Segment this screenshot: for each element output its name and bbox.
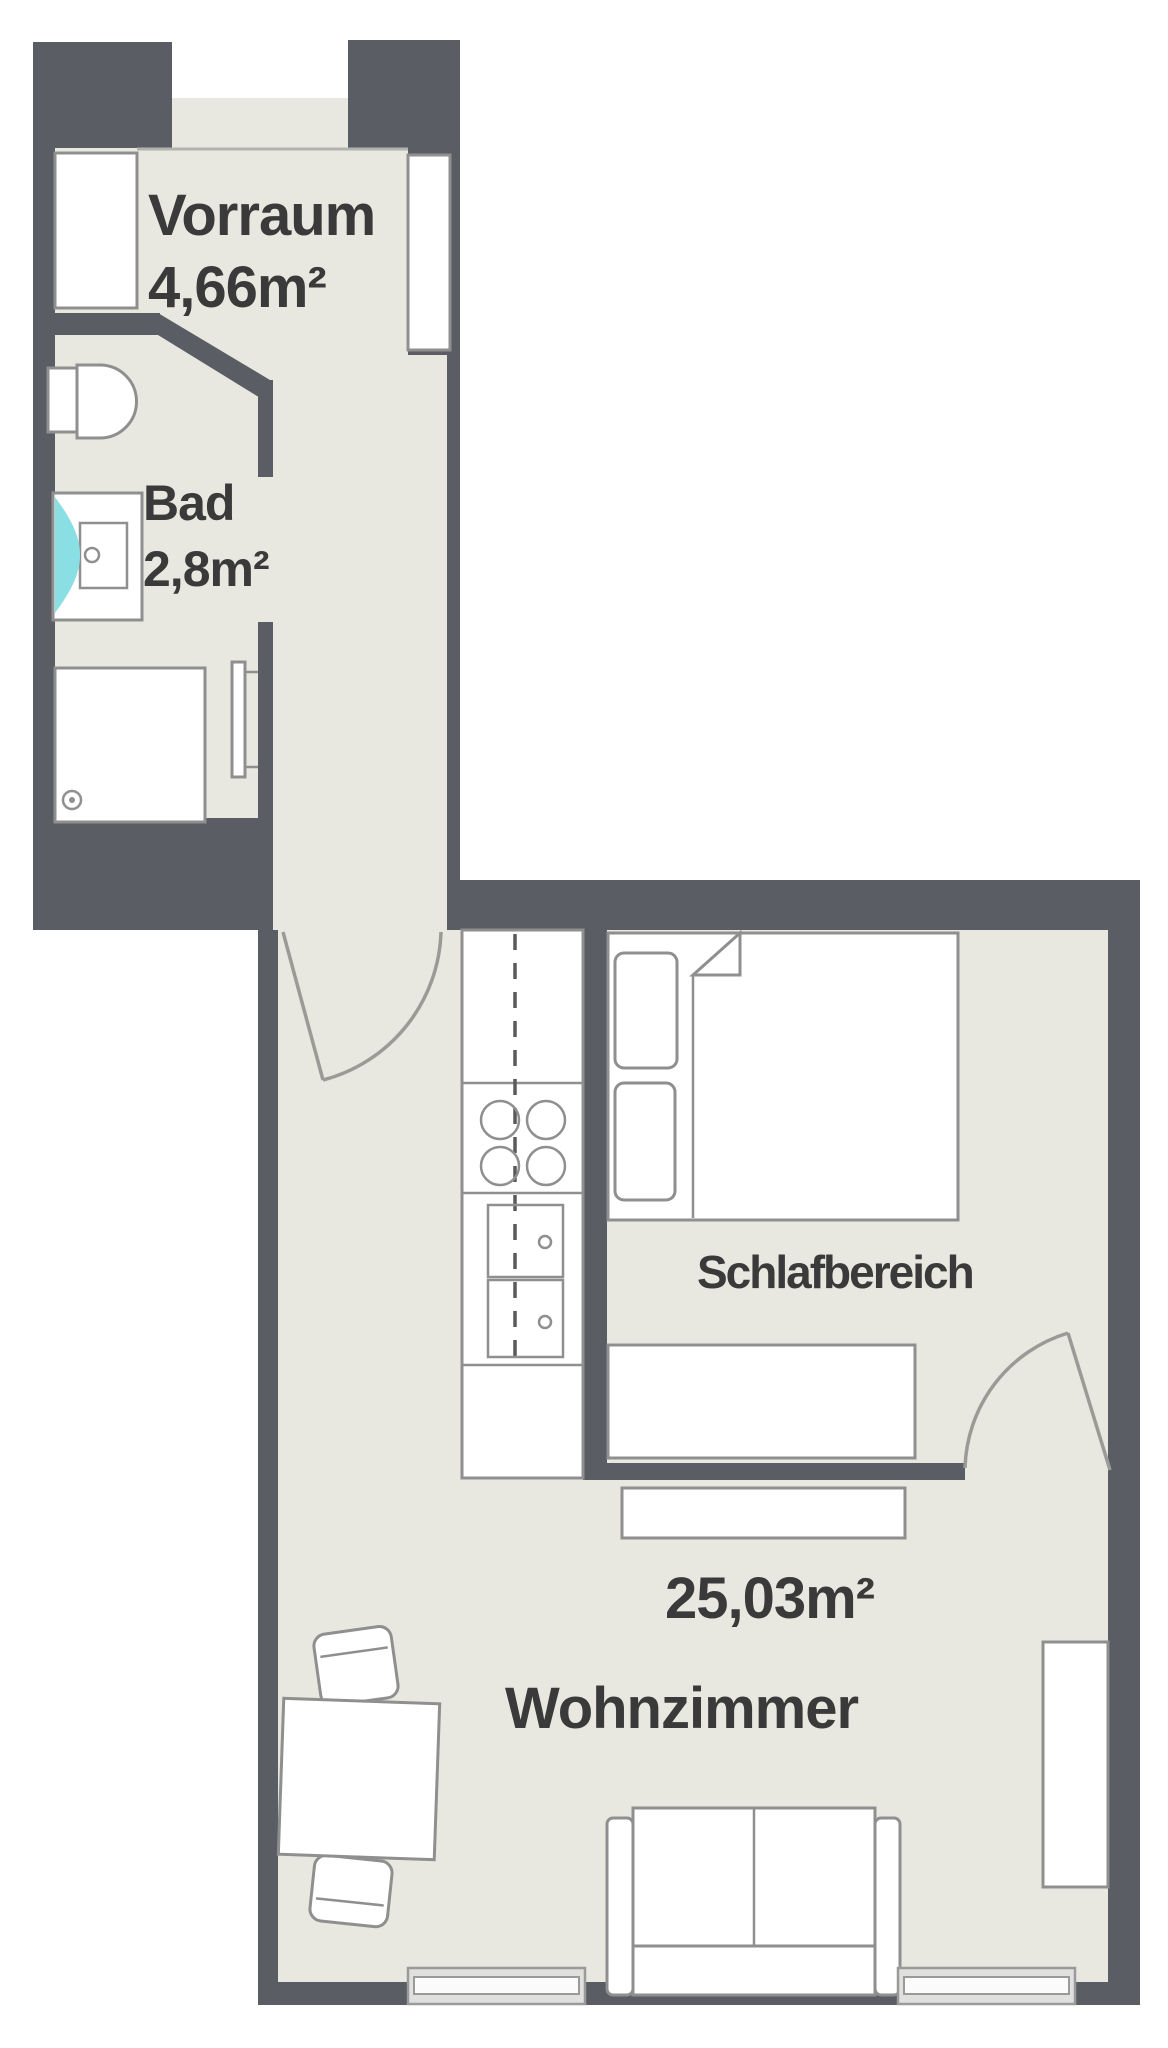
toilet-tank (48, 368, 77, 432)
wall-shelf (1043, 1642, 1108, 1887)
wall-bad-right-lower (258, 622, 273, 818)
sleeping-area-furniture (608, 933, 958, 1458)
sofa-armrest-left (607, 1818, 633, 1995)
wall-living-top (447, 880, 1140, 930)
shower-drain-dot (69, 797, 75, 803)
bad-label: Bad (143, 475, 234, 531)
chair-top (312, 1625, 399, 1707)
entry-door-niche (408, 155, 450, 350)
floor-plan: Vorraum 4,66m² Bad 2,8m² Schlafbereich 2… (0, 0, 1168, 2048)
towel-radiator (232, 662, 245, 777)
foot-bench (608, 1345, 915, 1458)
wall-divider-vertical (583, 930, 607, 1480)
floor-plan-drawing: Vorraum 4,66m² Bad 2,8m² Schlafbereich 2… (0, 0, 1168, 2048)
wall-right-corridor (447, 350, 460, 880)
chair-bottom (309, 1854, 393, 1928)
window-left (408, 1968, 585, 2004)
sideboard (622, 1488, 905, 1538)
wall-bad-right-upper (258, 380, 273, 477)
wall-bad-bottom-block (33, 818, 273, 930)
wohnzimmer-area: 25,03m² (665, 1566, 875, 1631)
bad-area: 2,8m² (143, 541, 269, 597)
toilet-bowl (77, 365, 137, 438)
wall-top-left-stub (33, 42, 172, 148)
sofa-armrest-right (875, 1818, 900, 1995)
entrance-outside-notch (172, 42, 348, 98)
built-in-closet (55, 153, 137, 308)
schlafbereich-label: Schlafbereich (697, 1246, 973, 1298)
pillow (615, 1083, 675, 1200)
wohnzimmer-label: Wohnzimmer (505, 1676, 858, 1741)
vorraum-area: 4,66m² (148, 255, 326, 320)
wall-vorraum-bad (33, 313, 160, 335)
window-right (898, 1968, 1075, 2004)
wall-living-right (1108, 930, 1140, 2005)
wall-divider-horizontal (583, 1463, 965, 1480)
wall-living-left (258, 930, 278, 2005)
vorraum-label: Vorraum (148, 183, 375, 248)
pillow (615, 953, 677, 1068)
wall-left-outer (33, 42, 55, 930)
wall-top-right-stub (348, 40, 460, 148)
sofa (607, 1808, 900, 1995)
sofa-backrest (633, 1946, 875, 1995)
shower-tray (55, 668, 205, 822)
kitchen (462, 930, 583, 1478)
dining-table (278, 1698, 439, 1859)
